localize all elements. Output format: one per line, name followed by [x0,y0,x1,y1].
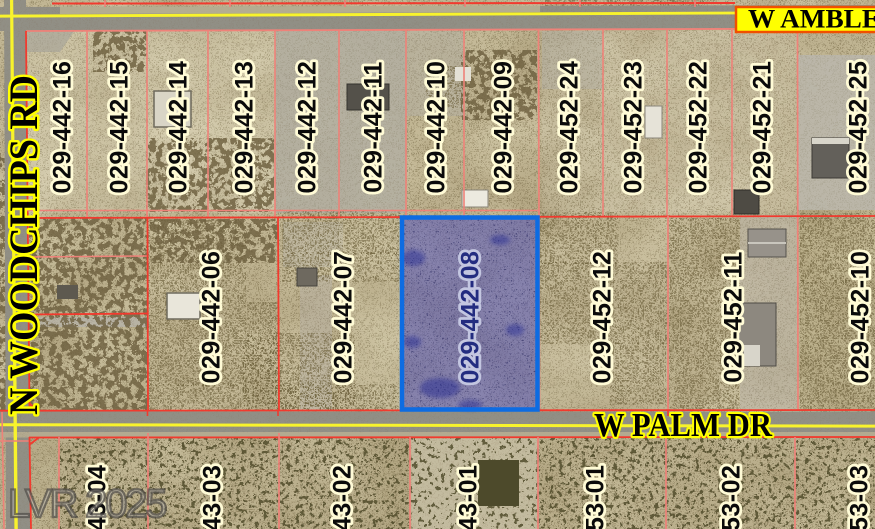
svg-text:029-452-21: 029-452-21 [749,61,777,194]
svg-text:029-443-03: 029-443-03 [199,465,227,529]
svg-text:029-442-07: 029-442-07 [330,251,358,384]
svg-text:029-442-12: 029-442-12 [294,61,322,194]
svg-text:029-442-15: 029-442-15 [106,61,134,194]
svg-text:029-442-14: 029-442-14 [165,61,193,194]
svg-text:029-452-25: 029-452-25 [845,61,873,194]
svg-text:029-443-02: 029-443-02 [329,465,357,529]
svg-text:W PALM DR: W PALM DR [594,407,772,444]
svg-text:LVR 2025: LVR 2025 [8,482,168,526]
svg-text:029-442-11: 029-442-11 [360,61,388,193]
svg-text:029-442-09: 029-442-09 [490,61,518,194]
svg-text:029-453-03: 029-453-03 [846,465,874,529]
svg-text:029-443-01: 029-443-01 [455,465,483,529]
svg-text:029-452-11: 029-452-11 [720,251,748,383]
svg-text:029-442-08: 029-442-08 [457,251,485,384]
svg-text:029-442-13: 029-442-13 [231,61,259,194]
svg-text:029-452-22: 029-452-22 [685,61,713,194]
svg-text:N WOODCHIPS RD: N WOODCHIPS RD [1,75,46,415]
svg-text:029-452-10: 029-452-10 [847,251,875,384]
svg-text:029-452-12: 029-452-12 [589,251,617,384]
svg-text:029-442-10: 029-442-10 [423,61,451,194]
svg-text:029-442-16: 029-442-16 [49,61,77,194]
svg-text:029-452-23: 029-452-23 [620,61,648,194]
svg-text:029-452-24: 029-452-24 [556,61,584,194]
svg-text:029-453-02: 029-453-02 [718,465,746,529]
svg-text:029-453-01: 029-453-01 [582,465,610,529]
svg-text:029-442-06: 029-442-06 [198,251,226,384]
svg-text:W AMBLE: W AMBLE [748,5,875,34]
